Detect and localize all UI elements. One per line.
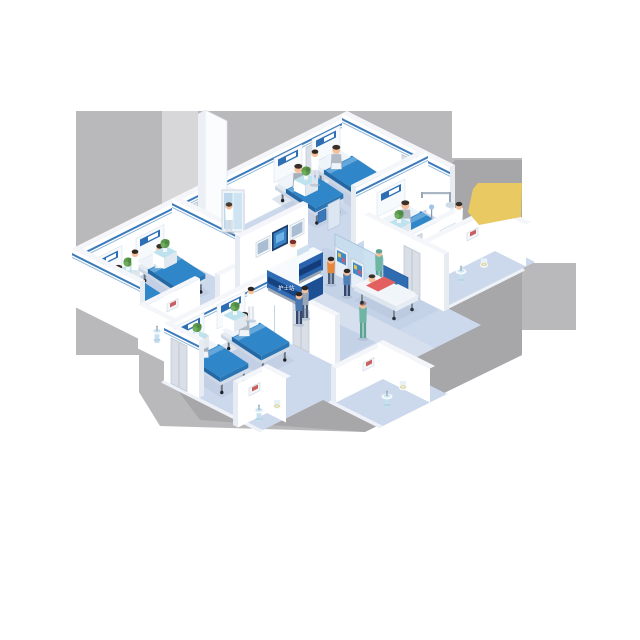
svg-text:护士站: 护士站: [278, 284, 295, 292]
